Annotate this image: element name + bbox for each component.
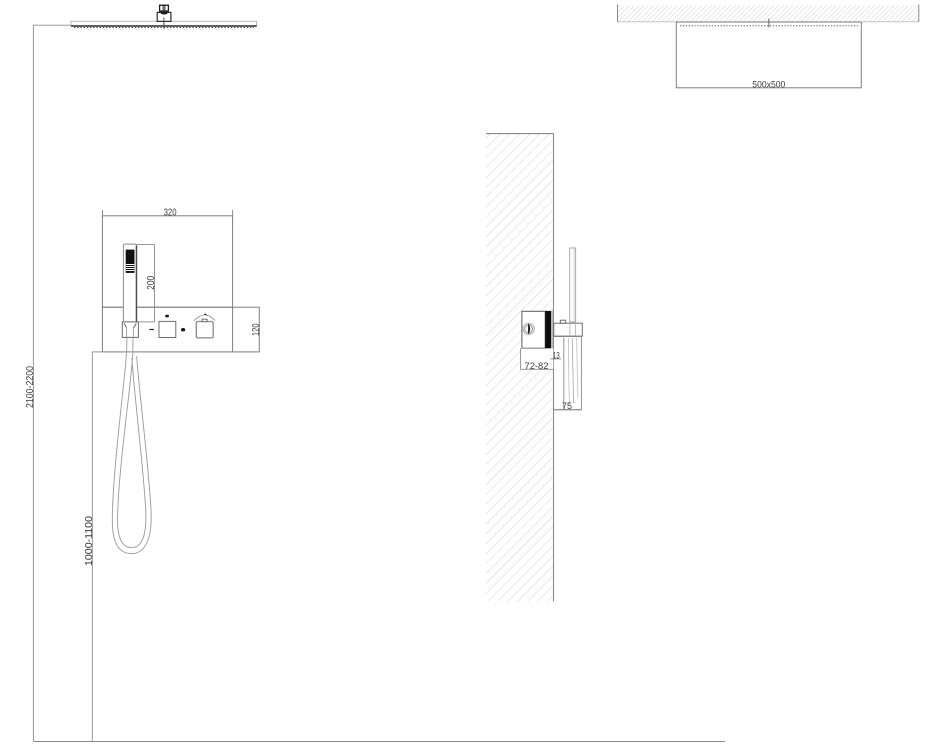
svg-text:320: 320 — [164, 208, 177, 219]
svg-text:1000-1100: 1000-1100 — [84, 516, 95, 566]
svg-text:2100-2200: 2100-2200 — [25, 366, 36, 408]
svg-text:200: 200 — [146, 276, 157, 290]
svg-text:500x500: 500x500 — [752, 79, 785, 90]
svg-text:75: 75 — [562, 400, 572, 411]
svg-text:72-82: 72-82 — [525, 360, 549, 371]
svg-text:120: 120 — [251, 323, 262, 336]
svg-text:13: 13 — [553, 349, 560, 360]
